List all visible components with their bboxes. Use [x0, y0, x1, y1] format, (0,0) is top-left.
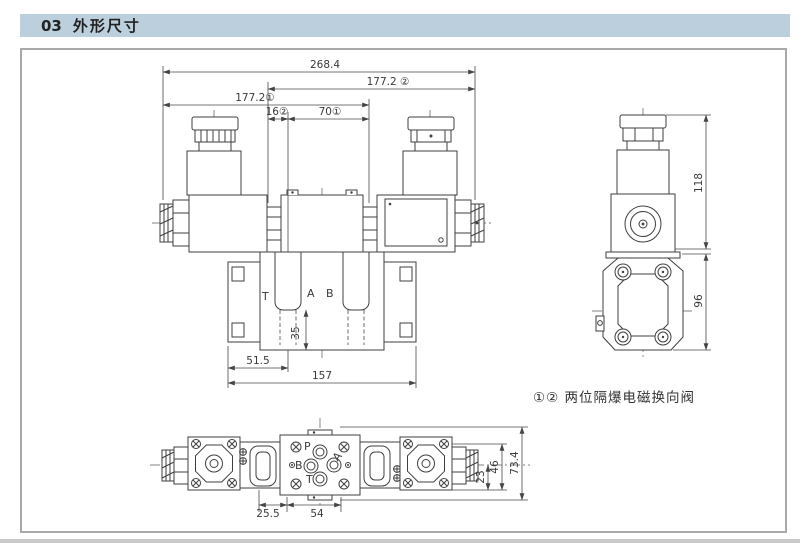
dim-height-734: 73.4 — [509, 451, 521, 475]
dim-overall-width: 268.4 — [310, 59, 340, 71]
dimension-drawing: T A B 268.4 177.2 ② 177.2① 16② 70① 51.5 … — [22, 50, 785, 529]
front-right-solenoid — [363, 117, 484, 252]
section-number: 03 — [41, 17, 62, 35]
dim-width-1: 177.2① — [235, 92, 274, 104]
top-right-solenoid — [360, 437, 478, 490]
dim-height-46: 46 — [489, 460, 501, 474]
dim-subplate-total: 157 — [312, 370, 332, 382]
top-port-b: B — [295, 459, 303, 472]
dim-port-span: 54 — [310, 508, 324, 520]
side-solenoid — [606, 115, 680, 258]
dim-solenoid-height: 118 — [693, 173, 705, 193]
section-title: 外形尺寸 — [73, 15, 141, 36]
page-bottom-strip — [0, 539, 800, 543]
dim-port-height: 35 — [290, 326, 302, 339]
top-valve-body: P B A T — [280, 430, 360, 500]
front-port-a: A — [307, 287, 315, 300]
dim-width-2: 177.2 ② — [367, 76, 410, 88]
dim-offset-70: 70① — [319, 106, 342, 118]
dim-height-23: 23 — [475, 470, 487, 483]
dim-offset-16: 16② — [266, 106, 289, 118]
front-left-solenoid — [160, 117, 281, 252]
dim-body-height: 96 — [693, 294, 705, 308]
side-valve-body — [596, 258, 683, 350]
side-view: 118 96 — [592, 108, 711, 360]
drawing-frame: T A B 268.4 177.2 ② 177.2① 16② 70① 51.5 … — [20, 48, 787, 533]
front-view: T A B 268.4 177.2 ② 177.2① 16② 70① 51.5 … — [152, 59, 492, 388]
dim-left-offset: 25.5 — [256, 508, 279, 520]
top-port-p: P — [304, 440, 311, 453]
figure-caption: ①② 两位隔爆电磁换向阀 — [533, 390, 695, 406]
front-valve-body — [281, 190, 363, 252]
top-port-t: T — [305, 473, 313, 486]
top-view: P B A T — [150, 418, 530, 520]
dim-subplate-left: 51.5 — [246, 355, 269, 367]
front-port-t: T — [261, 290, 269, 303]
top-left-solenoid — [162, 437, 280, 490]
section-header: 03 外形尺寸 — [20, 14, 790, 37]
front-port-b: B — [326, 287, 334, 300]
front-subplate: T A B — [228, 252, 416, 350]
